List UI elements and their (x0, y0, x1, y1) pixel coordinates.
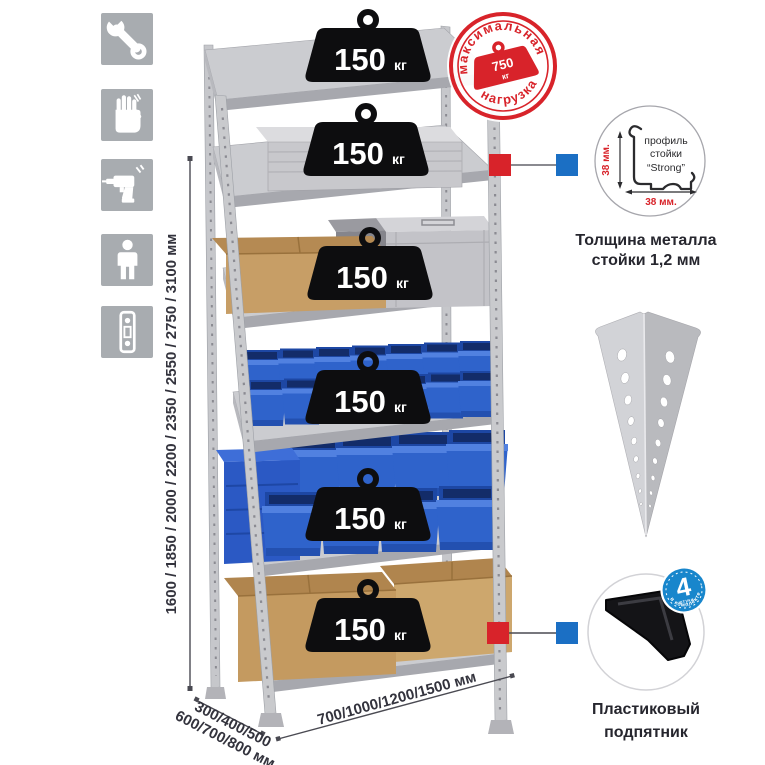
foot-caption-1: Пластиковый (592, 701, 700, 718)
load-unit: кг (394, 57, 407, 73)
profile-label-1: профиль (644, 135, 688, 147)
profile-label-3: “Strong” (647, 162, 685, 174)
profile-dim-horizontal: 38 мм. (645, 197, 677, 208)
callout-red-marker (489, 154, 511, 176)
profile-caption-1: Толщина металла (575, 232, 716, 249)
profile-caption-2: стойки 1,2 мм (592, 252, 701, 269)
max-load-stamp: максимальная нагрузка 750 кг (435, 0, 571, 134)
foot-caption-2: подпятник (604, 724, 689, 741)
front-left-foot (258, 713, 284, 727)
callout-blue-marker (556, 622, 578, 644)
load-value: 150 (336, 260, 388, 295)
rear-left-post (204, 45, 220, 688)
shelf-load-badge: 150 кг (303, 106, 428, 176)
load-unit: кг (394, 516, 407, 532)
height-dimension: 1600 / 1850 / 2000 / 2200 / 2350 / 2550 … (163, 156, 193, 691)
load-value: 150 (334, 501, 386, 536)
rear-right-post (441, 26, 452, 650)
profile-dim-vertical: 38 мм. (601, 144, 612, 176)
corner-post-image (595, 312, 700, 537)
profile-callout (489, 154, 578, 176)
callout-blue-marker (556, 154, 578, 176)
load-value: 150 (334, 384, 386, 419)
product-infographic: 150 кг 150 кг 150 кг 150 кг (0, 0, 765, 765)
profile-detail: профиль стойки “Strong” 38 мм. 38 мм. То… (575, 106, 716, 269)
load-unit: кг (394, 399, 407, 415)
foot-detail: 4 штуки в комплекте Пластиковый подпятни… (588, 563, 711, 741)
load-unit: кг (392, 151, 405, 167)
front-right-foot (488, 720, 514, 734)
rear-left-foot (205, 687, 226, 699)
height-label: 1600 / 1850 / 2000 / 2200 / 2350 / 2550 … (163, 234, 180, 615)
load-unit: кг (396, 275, 409, 291)
shelf-load-badge: 150 кг (305, 12, 430, 82)
load-value: 150 (334, 612, 386, 647)
callout-red-marker (487, 622, 509, 644)
shelving-diagram: 150 кг 150 кг 150 кг 150 кг (0, 0, 765, 765)
profile-label-2: стойки (650, 148, 682, 160)
load-value: 150 (332, 136, 384, 171)
foot-callout (487, 622, 578, 644)
load-value: 150 (334, 42, 386, 77)
load-unit: кг (394, 627, 407, 643)
